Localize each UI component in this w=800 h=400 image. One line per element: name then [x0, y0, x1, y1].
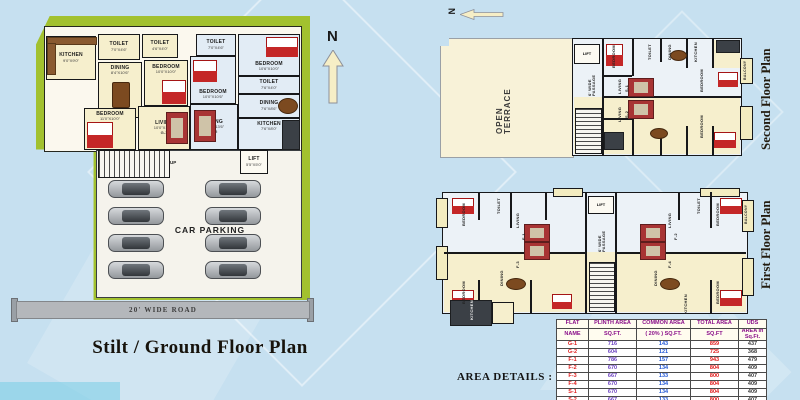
- bed: [552, 294, 572, 309]
- staircase-second: [575, 108, 602, 154]
- north-arrow-left-icon: [460, 9, 504, 20]
- car-icon: [108, 261, 164, 279]
- uds-area: 368: [739, 349, 767, 357]
- room-toilet-2-g1: TOILET 4'6"X4'0": [142, 34, 178, 58]
- room-dims: 7'6"X8'6": [260, 107, 279, 111]
- flat-name: G-2: [557, 349, 589, 357]
- room-label-bedroom: BEDROOM: [462, 282, 466, 304]
- wall: [444, 252, 585, 254]
- car-icon: [205, 261, 261, 279]
- bed: [193, 60, 217, 82]
- sofa-set: [524, 224, 550, 242]
- car-icon: [108, 234, 164, 252]
- dining-table: [650, 128, 668, 139]
- bed: [720, 198, 742, 214]
- room-label-dining: DINING: [500, 268, 504, 286]
- balcony: [553, 188, 583, 197]
- flat-name: F-4: [557, 381, 589, 389]
- sofa-set: [640, 224, 666, 242]
- col-uds: UDS: [739, 320, 767, 329]
- wall: [585, 192, 587, 314]
- flat-name: G-1: [557, 341, 589, 349]
- lift-dims: 5'5"X5'0": [246, 163, 262, 167]
- room-toilet-top-g2: TOILET 7'0"X4'6": [196, 34, 236, 56]
- balcony: [740, 106, 753, 140]
- uds-area: 407: [739, 397, 767, 400]
- car-icon: [205, 180, 261, 198]
- north-letter-rotated: N: [447, 8, 457, 15]
- wall: [660, 38, 662, 62]
- bed: [162, 80, 186, 104]
- wall: [710, 192, 712, 228]
- common-area: 121: [637, 349, 691, 357]
- room-label-toilet: TOILET: [648, 44, 652, 60]
- room-toilet-1-g1: TOILET 7'0"X4'6": [98, 34, 140, 60]
- road-label: 20' WIDE ROAD: [129, 306, 197, 314]
- first-floor-title: First Floor Plan: [758, 186, 774, 304]
- room-label-living: LIVING: [618, 76, 622, 94]
- room-dims: 10'0"X10'6": [203, 95, 223, 99]
- plinth-area: 716: [589, 341, 637, 349]
- total-area: 804: [691, 381, 739, 389]
- room-label-dining: DINING: [668, 44, 672, 60]
- flat-name: F-1: [557, 357, 589, 365]
- room-label-bedroom: BEDROOM: [700, 118, 704, 138]
- floor-plan-brochure: KITCHEN 9'0"X9'0" TOILET 7'0"X4'6" TOILE…: [0, 0, 800, 400]
- room-dims: 7'6"X4'0": [261, 86, 277, 90]
- table-header-row-2: NAME SQ.FT. ( 20% ) SQ.FT. SQ.FT AREA in…: [557, 329, 767, 341]
- sofa-set: [628, 100, 654, 119]
- balcony: [700, 188, 740, 197]
- total-area: 804: [691, 365, 739, 373]
- north-arrow-icon: [322, 50, 344, 104]
- room-toilet-right-g2: TOILET 7'6"X4'0": [238, 76, 300, 94]
- unit-label-f4: F-4: [668, 258, 672, 268]
- table-row: S-2 667 133 800 407: [557, 397, 767, 400]
- room-dims: 4'6"X4'0": [152, 47, 168, 51]
- room-label-balcony: BALCONY: [744, 62, 748, 80]
- wall: [510, 192, 512, 228]
- sofa-set: [166, 112, 188, 144]
- car-icon: [205, 207, 261, 225]
- plinth-area: 670: [589, 389, 637, 397]
- dining-table: [506, 278, 526, 290]
- lift-label: LIFT: [583, 52, 591, 56]
- room-label-dining: DINING: [654, 268, 658, 286]
- wall: [712, 38, 714, 68]
- room-label-living: LIVING: [516, 210, 520, 228]
- flat-name: S-1: [557, 389, 589, 397]
- lift-label: LIFT: [597, 203, 605, 207]
- room-label-bedroom: BEDROOM: [462, 204, 466, 226]
- plinth-area: 670: [589, 381, 637, 389]
- room-dims: 7'0"X4'6": [208, 46, 224, 50]
- car-icon: [108, 180, 164, 198]
- plinth-area: 604: [589, 349, 637, 357]
- col-common: COMMON AREA: [637, 320, 691, 329]
- dining-table: [670, 50, 687, 61]
- wall: [632, 118, 634, 156]
- col-uds-sub: AREA in Sq.Ft.: [739, 329, 767, 341]
- col-flat-sub: NAME: [557, 329, 589, 341]
- table-row: G-1 716 143 859 437: [557, 341, 767, 349]
- room-label-bedroom: BEDROOM: [612, 48, 616, 68]
- kitchen-counter-dark: [282, 120, 300, 150]
- room-label-kitchen: KITCHEN: [470, 300, 474, 320]
- common-area: 133: [637, 397, 691, 400]
- room-dims: 11'0"X10'0": [100, 117, 120, 121]
- flat-name: S-2: [557, 397, 589, 400]
- common-area: 143: [637, 341, 691, 349]
- wall: [617, 252, 746, 254]
- wall: [686, 126, 688, 156]
- common-area: 157: [637, 357, 691, 365]
- room-dims: 7'6"X8'0": [261, 127, 277, 131]
- bed: [87, 122, 113, 148]
- table-row: S-1 670 134 804 409: [557, 389, 767, 397]
- passage-label: 6' WIDE PASSAGE: [588, 72, 596, 96]
- lift-room-first: LIFT: [588, 196, 614, 214]
- open-terrace-label: OPEN TERRACE: [496, 62, 512, 134]
- unit-label-s2: S-2: [625, 108, 629, 118]
- room-dims: 10'0"X10'0": [156, 70, 176, 74]
- wall: [710, 280, 712, 314]
- car-icon: [205, 234, 261, 252]
- uds-area: 437: [739, 341, 767, 349]
- north-letter: N: [327, 28, 338, 45]
- passage-label: 6' WIDE PASSAGE: [598, 226, 606, 252]
- total-area: 800: [691, 397, 739, 400]
- col-common-sub: ( 20% ) SQ.FT.: [637, 329, 691, 341]
- table-header-row-1: FLAT PLINTH AREA COMMON AREA TOTAL AREA …: [557, 320, 767, 329]
- common-area: 134: [637, 381, 691, 389]
- room-dims: 9'0"X9'0": [63, 59, 79, 63]
- table-row: F-3 667 133 800 407: [557, 373, 767, 381]
- wall: [678, 192, 680, 220]
- bed: [266, 37, 298, 57]
- col-plinth: PLINTH AREA: [589, 320, 637, 329]
- dining-table: [112, 82, 130, 108]
- sofa-set: [524, 242, 550, 260]
- table-row: F-2 670 134 804 409: [557, 365, 767, 373]
- total-area: 859: [691, 341, 739, 349]
- room-label-bedroom: BEDROOM: [716, 204, 720, 226]
- wall: [602, 96, 742, 98]
- staircase: [98, 150, 170, 178]
- uds-area: 409: [739, 381, 767, 389]
- total-area: 804: [691, 389, 739, 397]
- room-dims: 7'0"X4'6": [111, 48, 127, 52]
- common-area: 133: [637, 373, 691, 381]
- total-area: 943: [691, 357, 739, 365]
- plinth-area: 667: [589, 373, 637, 381]
- area-details-table: FLAT PLINTH AREA COMMON AREA TOTAL AREA …: [556, 319, 767, 400]
- col-plinth-sub: SQ.FT.: [589, 329, 637, 341]
- uds-area: 479: [739, 357, 767, 365]
- total-area: 725: [691, 349, 739, 357]
- wall: [530, 280, 532, 314]
- uds-area: 407: [739, 373, 767, 381]
- table-row: F-4 670 134 804 409: [557, 381, 767, 389]
- common-area: 134: [637, 365, 691, 373]
- dining-table: [660, 278, 680, 290]
- bed: [720, 290, 742, 306]
- col-flat: FLAT: [557, 320, 589, 329]
- unit-label-f3: F-3: [516, 258, 520, 268]
- room-dims: 8'4"X10'6": [111, 71, 129, 75]
- kitchen-counter: [47, 43, 56, 75]
- ground-floor-title: Stilt / Ground Floor Plan: [28, 337, 372, 359]
- road: 20' WIDE ROAD: [16, 301, 310, 319]
- lift-room: LIFT 5'5"X5'0": [240, 150, 268, 174]
- room-dims: 10'6"X10'0": [259, 67, 279, 71]
- unit-label-s1: S-1: [625, 82, 629, 92]
- kitchen-counter-dark: [716, 40, 740, 53]
- staircase-first: [589, 262, 615, 312]
- room-label-toilet: TOILET: [697, 198, 701, 214]
- plinth-area: 786: [589, 357, 637, 365]
- common-area: 134: [637, 389, 691, 397]
- kitchen-counter-dark: [604, 132, 624, 150]
- plinth-area: 670: [589, 365, 637, 373]
- flat-name: F-2: [557, 365, 589, 373]
- uds-area: 409: [739, 365, 767, 373]
- car-icon: [108, 207, 164, 225]
- unit-label-f1: F-1: [522, 230, 526, 240]
- table-row: G-2 604 121 725 368: [557, 349, 767, 357]
- unit-label-f2: F-2: [674, 230, 678, 240]
- sofa-set: [640, 242, 666, 260]
- room-label-living: LIVING: [668, 210, 672, 228]
- room-label-kitchen: KITCHEN: [694, 44, 698, 62]
- room-label-toilet: TOILET: [497, 198, 501, 214]
- flat-name: F-3: [557, 373, 589, 381]
- area-details-heading: AREA DETAILS :: [457, 371, 553, 383]
- stairs-up-label: UP: [170, 160, 176, 165]
- room-label-bedroom: BEDROOM: [716, 282, 720, 304]
- room-label-kitchen: KITCHEN: [684, 296, 688, 314]
- col-total-sub: SQ.FT: [691, 329, 739, 341]
- bed: [718, 72, 738, 87]
- second-floor-title: Second Floor Plan: [758, 40, 774, 158]
- room-label-bedroom: BEDROOM: [700, 72, 704, 92]
- bed: [714, 132, 736, 148]
- room-label-living: LIVING: [618, 104, 622, 122]
- utility-room: [492, 302, 514, 324]
- total-area: 800: [691, 373, 739, 381]
- col-total: TOTAL AREA: [691, 320, 739, 329]
- background-strip-decoration: [0, 382, 120, 400]
- balcony: [436, 198, 448, 228]
- sofa-set: [194, 110, 216, 142]
- wall: [478, 192, 480, 220]
- lift-room-second: LIFT: [574, 44, 600, 64]
- uds-area: 409: [739, 389, 767, 397]
- room-label-balcony: BALCONY: [745, 206, 749, 224]
- wall: [632, 38, 634, 76]
- plinth-area: 667: [589, 397, 637, 400]
- balcony: [742, 258, 754, 296]
- dining-table: [278, 98, 298, 114]
- table-row: F-1 786 157 943 479: [557, 357, 767, 365]
- car-parking-label: CAR PARKING: [150, 225, 270, 235]
- wall: [545, 192, 547, 220]
- sofa-set: [628, 78, 654, 97]
